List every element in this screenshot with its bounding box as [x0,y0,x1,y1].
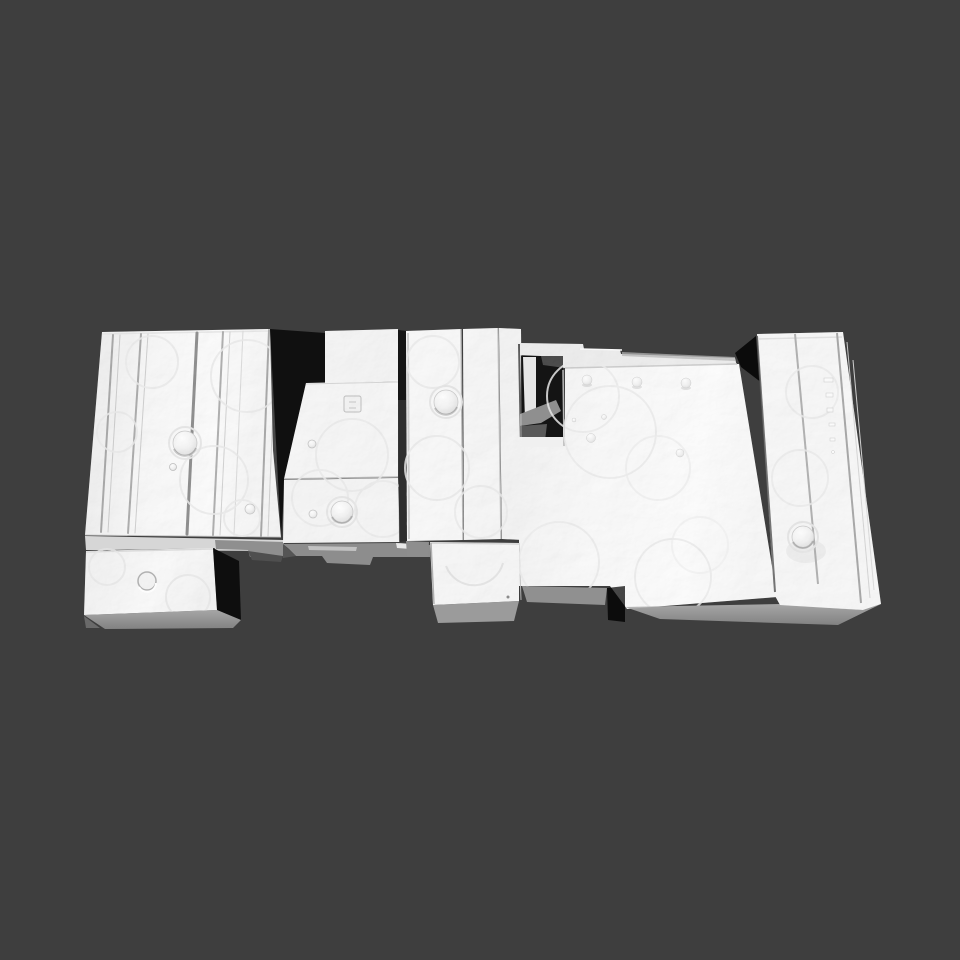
plate-bottom-face-left [522,586,607,605]
wavy-noise-layer [78,322,888,634]
mesh-texture-overlay [78,322,888,634]
gap-shadow-dark [398,330,406,400]
column-front-step [406,541,429,557]
3d-viewport[interactable] [0,0,960,960]
scanned-model [78,322,888,634]
model-render-canvas[interactable] [0,0,960,960]
